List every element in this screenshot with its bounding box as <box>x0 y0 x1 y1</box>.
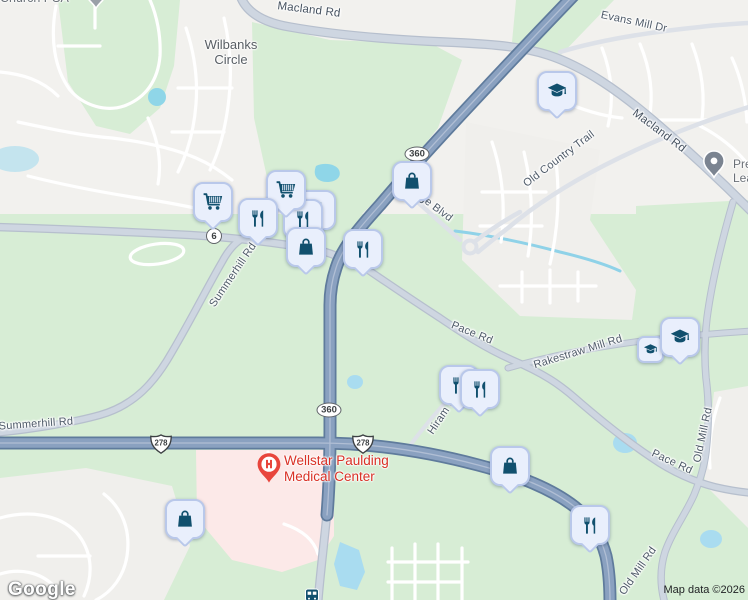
route-shield-360-north: 360 <box>405 147 430 162</box>
hospital-pin[interactable] <box>256 452 282 484</box>
shopping-marker[interactable] <box>392 161 432 201</box>
school-marker[interactable] <box>660 317 700 357</box>
restaurant-icon <box>247 207 270 230</box>
map-base-art <box>0 0 748 600</box>
route-shield-6: 6 <box>206 228 222 244</box>
restaurant-marker[interactable] <box>460 369 500 409</box>
google-logo[interactable]: Google <box>8 579 76 600</box>
map-canvas[interactable]: Church PSA Wilbanks Circle Pre Lea Wells… <box>0 0 748 600</box>
shopping-marker[interactable] <box>286 227 326 267</box>
school-icon <box>642 341 659 358</box>
shopping-marker[interactable] <box>165 499 205 539</box>
school-marker[interactable] <box>537 71 577 111</box>
grocery-store-marker[interactable] <box>193 182 233 222</box>
hospital-label[interactable]: Wellstar Paulding Medical Center <box>284 453 389 485</box>
route-shield-360-south: 360 <box>317 403 342 418</box>
restaurant-icon <box>579 514 602 537</box>
svg-text:278: 278 <box>356 439 370 448</box>
shopping-marker[interactable] <box>490 446 530 486</box>
route-shield-us278-east: 278 <box>351 434 376 455</box>
generic-poi-pin[interactable] <box>702 150 726 179</box>
wilbanks-circle-label: Wilbanks Circle <box>193 37 269 67</box>
shopping-cart-icon <box>274 178 298 202</box>
shopping-bag-icon <box>498 454 522 478</box>
bus-stop-icon[interactable] <box>304 588 320 600</box>
map-data-attribution: Map data ©2026 <box>664 584 746 596</box>
clipped-right-poi-label: Pre Lea <box>733 157 748 185</box>
restaurant-marker[interactable] <box>570 505 610 545</box>
svg-text:278: 278 <box>154 439 168 448</box>
shopping-bag-icon <box>294 235 318 259</box>
generic-poi-pin[interactable] <box>84 0 108 10</box>
restaurant-icon <box>469 378 492 401</box>
restaurant-marker[interactable] <box>343 229 383 269</box>
school-icon <box>545 79 569 103</box>
restaurant-icon <box>352 238 375 261</box>
shopping-cart-icon <box>201 190 225 214</box>
restaurant-marker[interactable] <box>238 198 278 238</box>
shopping-bag-icon <box>173 507 197 531</box>
church-psa-label: Church PSA <box>0 0 69 6</box>
shopping-bag-icon <box>400 169 424 193</box>
school-icon <box>668 325 692 349</box>
route-shield-us278-west: 278 <box>149 434 174 455</box>
